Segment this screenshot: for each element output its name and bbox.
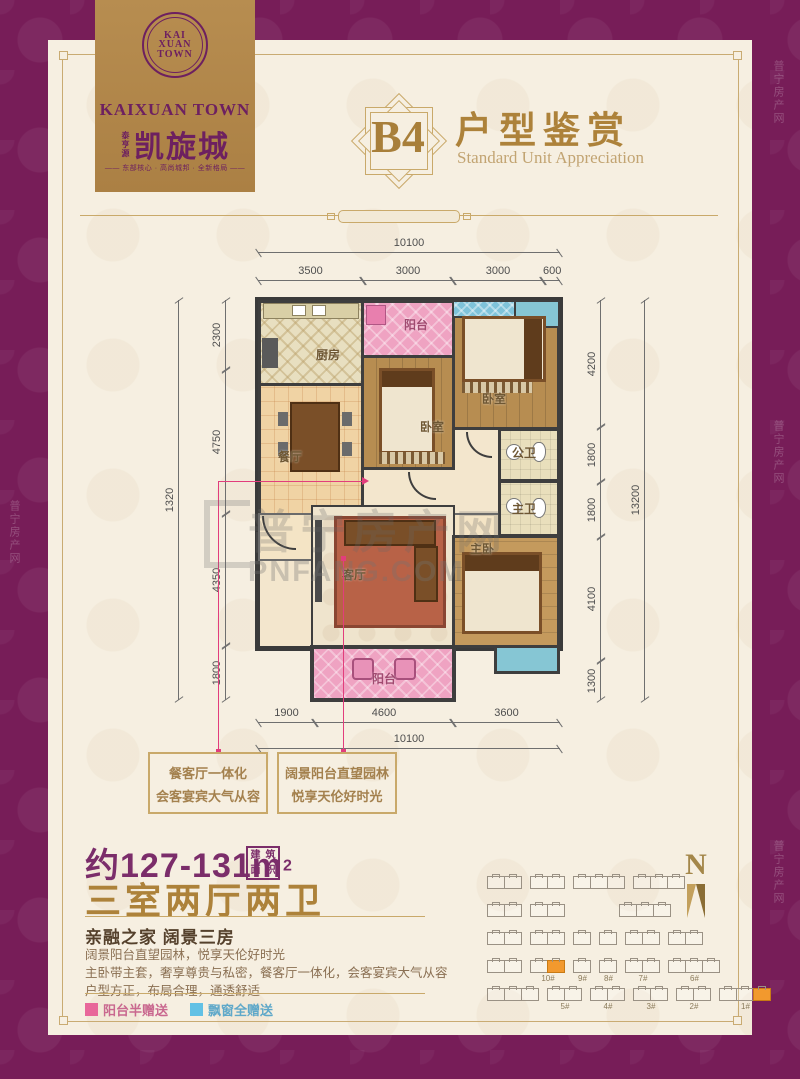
building-icon — [547, 876, 565, 889]
room-label-bath-public: 公卫 — [512, 444, 536, 461]
poster-page: 普宁房产网 普宁房产网 普宁房产网 普宁房产网 KAI XUAN TOWN KA… — [0, 0, 800, 1079]
kitchen-sink-icon — [312, 305, 326, 316]
building-label: 2# — [690, 1002, 699, 1011]
callout-text: 会客宴宾大气从容 — [150, 785, 266, 808]
dim-left-total: 1320 — [178, 300, 179, 700]
building-icon — [487, 876, 505, 889]
building-label: 9# — [578, 974, 587, 983]
building-label: 7# — [639, 974, 648, 983]
siteplan-building-cluster — [600, 932, 617, 955]
building-icon — [487, 988, 505, 1001]
building-icon — [530, 960, 548, 973]
dim-bottom-seg: 3600 — [453, 722, 560, 723]
siteplan-building-cluster: 10# — [531, 960, 565, 983]
summary-body: 阔景阳台直望园林，悦享天伦好时光 主卧带主套，奢享尊贵与私密，餐客厅一体化，会客… — [85, 946, 485, 1000]
siteplan-building-cluster — [597, 906, 611, 927]
building-icon — [564, 988, 582, 1001]
building-label: 3# — [647, 1002, 656, 1011]
building-icon — [650, 876, 668, 889]
dim-right-seg: 4100 — [600, 537, 601, 661]
brand-emblem-icon: KAI XUAN TOWN — [142, 12, 208, 78]
bed-pillow-icon — [465, 555, 539, 571]
dim-right-seg: 4200 — [600, 300, 601, 427]
callout-box-dining: 餐客厅一体化 会客宴宾大气从容 — [148, 752, 268, 814]
dim-right-seg: 1300 — [600, 661, 601, 700]
building-icon — [650, 988, 668, 1001]
building-label: 4# — [604, 1002, 613, 1011]
siteplan-building-cluster — [488, 904, 522, 927]
room-label-kitchen: 厨房 — [316, 346, 340, 363]
building-icon — [487, 960, 505, 973]
building-icon — [685, 960, 703, 973]
siteplan-building-cluster — [574, 876, 625, 899]
siteplan-building-cluster — [574, 906, 588, 927]
edge-watermark: 普宁房产网 — [770, 60, 786, 125]
siteplan-rows: 10#9#8#7#6#5#4#3#2#1# — [488, 876, 703, 1011]
siteplan-building-cluster: 6# — [669, 960, 720, 983]
kitchen-counter-icon — [263, 303, 359, 319]
balcony-chair-icon — [352, 658, 374, 680]
chair-icon — [342, 412, 352, 426]
building-icon — [530, 876, 548, 889]
building-icon — [487, 932, 505, 945]
siteplan-building-cluster — [488, 876, 522, 899]
dim-bottom-seg: 4600 — [315, 722, 453, 723]
dim-left-seg: 2300 — [225, 300, 226, 370]
building-icon — [693, 988, 711, 1001]
building-label: 10# — [541, 974, 554, 983]
building-icon — [504, 904, 522, 917]
building-icon — [702, 960, 720, 973]
siteplan-building-cluster: 9# — [574, 960, 591, 983]
building-icon — [504, 988, 522, 1001]
building-icon — [653, 904, 671, 917]
chair-icon — [278, 412, 288, 426]
edge-watermark: 普宁房产网 — [770, 840, 786, 905]
edge-watermark: 普宁房产网 — [6, 500, 22, 565]
washer-icon — [366, 305, 386, 325]
callout-text: 阔景阳台直望园林 — [279, 762, 395, 785]
siteplan-building-cluster: 5# — [548, 988, 582, 1011]
siteplan-building-cluster — [620, 904, 671, 927]
callout-line — [218, 481, 219, 752]
legend-label: 飘窗全赠送 — [208, 1000, 273, 1019]
sofa-icon — [344, 520, 436, 546]
building-icon — [668, 960, 686, 973]
building-icon — [642, 932, 660, 945]
callout-box-balcony: 阔景阳台直望园林 悦享天伦好时光 — [277, 752, 397, 814]
dim-left-seg: 4350 — [225, 514, 226, 646]
siteplan-building-cluster — [574, 932, 591, 955]
tv-cabinet-icon — [315, 520, 322, 602]
building-icon — [573, 932, 591, 945]
siteplan-building-cluster — [669, 932, 703, 955]
brand-name-en: KAIXUAN TOWN — [95, 100, 255, 120]
siteplan-building-cluster — [531, 904, 565, 927]
dim-top-seg: 3000 — [363, 280, 453, 281]
building-icon — [676, 988, 694, 1001]
north-label: N — [678, 848, 714, 882]
legend-item-balcony: 阳台半赠送 — [85, 1000, 168, 1019]
bed-pillow-icon — [524, 319, 542, 379]
unit-badge-label: B4 — [352, 110, 444, 163]
building-icon — [504, 960, 522, 973]
brand-tagline: —— 东部核心 · 高尚城邦 · 全新格局 —— — [95, 163, 255, 173]
building-icon — [547, 960, 565, 973]
siteplan-building-cluster — [488, 960, 522, 983]
siteplan-building-cluster — [488, 932, 522, 955]
kitchen-sink-icon — [292, 305, 306, 316]
building-icon — [590, 876, 608, 889]
siteplan: 10#9#8#7#6#5#4#3#2#1# — [488, 876, 703, 1016]
siteplan-building-cluster: 3# — [634, 988, 668, 1011]
page-title: 户型鉴赏 — [455, 100, 631, 154]
callout-text: 餐客厅一体化 — [150, 762, 266, 785]
summary-line: 阔景阳台直望园林，悦享天伦好时光 — [85, 946, 485, 964]
room-label-master: 主卧 — [470, 540, 494, 557]
dim-bottom-total: 10100 — [258, 748, 560, 749]
building-icon — [633, 988, 651, 1001]
dim-left-seg: 1800 — [225, 646, 226, 700]
siteplan-building-cluster — [626, 932, 660, 955]
building-icon — [636, 904, 654, 917]
building-icon — [719, 988, 737, 1001]
summary-line: 户型方正，布局合理，通透舒适 — [85, 982, 485, 1000]
building-icon — [530, 904, 548, 917]
siteplan-building-cluster: 7# — [626, 960, 660, 983]
building-icon — [619, 904, 637, 917]
siteplan-building-cluster — [488, 988, 539, 1011]
emblem-text: TOWN — [157, 50, 193, 60]
building-icon — [625, 960, 643, 973]
dim-top-total: 10100 — [258, 252, 560, 253]
building-icon — [521, 988, 539, 1001]
siteplan-building-cluster — [531, 876, 565, 899]
callout-text: 悦享天伦好时光 — [279, 785, 395, 808]
dim-bottom-seg: 1900 — [258, 722, 315, 723]
building-icon — [668, 932, 686, 945]
north-compass: N — [678, 848, 714, 918]
room-label-bedroom2: 卧室 — [482, 390, 506, 407]
building-icon — [642, 960, 660, 973]
legend-item-baywindow: 飘窗全赠送 — [190, 1000, 273, 1019]
room-label-dining: 餐厅 — [278, 448, 302, 465]
summary-heading: 亲融之家 阔景三房 — [85, 923, 235, 948]
legend-swatch-blue — [190, 1003, 203, 1016]
building-icon — [504, 876, 522, 889]
brand-logo-block: KAI XUAN TOWN KAIXUAN TOWN 泰亨源 凯旋城 —— 东部… — [95, 0, 255, 192]
room-label-bath-master: 主卫 — [512, 500, 536, 517]
building-icon — [590, 988, 608, 1001]
dim-right-seg: 1800 — [600, 427, 601, 482]
building-icon — [504, 932, 522, 945]
building-icon — [547, 904, 565, 917]
building-label: 1# — [741, 1002, 750, 1011]
building-icon — [607, 876, 625, 889]
dim-top-seg: 3000 — [453, 280, 543, 281]
header-divider — [80, 215, 718, 216]
legend-label: 阳台半赠送 — [103, 1000, 168, 1019]
summary-line: 主卧带主套，奢享尊贵与私密，餐客厅一体化，会客宴宾大气从容 — [85, 964, 485, 982]
callout-line — [218, 481, 362, 482]
page-subtitle: Standard Unit Appreciation — [457, 148, 644, 168]
summary-divider — [85, 916, 425, 917]
building-icon — [736, 988, 754, 1001]
north-arrow-icon — [687, 884, 705, 918]
building-icon — [547, 932, 565, 945]
dim-top-seg: 600 — [543, 280, 560, 281]
balcony-chair-icon — [394, 658, 416, 680]
wardrobe-icon — [379, 452, 445, 464]
building-icon — [633, 876, 651, 889]
siteplan-building-cluster — [531, 932, 565, 955]
building-icon — [599, 960, 617, 973]
legend-swatch-pink — [85, 1003, 98, 1016]
bay-window-master — [494, 645, 560, 674]
room-label-bedroom1: 卧室 — [420, 418, 444, 435]
building-icon — [685, 932, 703, 945]
unit-badge: B4 — [352, 94, 444, 186]
bed-pillow-icon — [382, 371, 432, 387]
building-icon — [530, 932, 548, 945]
building-icon — [599, 932, 617, 945]
stove-icon — [262, 338, 278, 368]
dim-top-seg: 3500 — [258, 280, 363, 281]
building-icon — [573, 876, 591, 889]
building-icon — [753, 988, 771, 1001]
dim-left-seg: 4750 — [225, 370, 226, 514]
dim-right-total: 13200 — [644, 300, 645, 700]
room-label-balcony-bottom: 阳台 — [372, 670, 396, 687]
siteplan-building-cluster: 4# — [591, 988, 625, 1011]
building-icon — [487, 904, 505, 917]
callout-line — [343, 558, 344, 752]
chair-icon — [342, 442, 352, 456]
building-label: 8# — [604, 974, 613, 983]
building-icon — [573, 960, 591, 973]
dim-right-seg: 1800 — [600, 482, 601, 537]
room-label-living: 客厅 — [342, 566, 366, 583]
summary-divider — [85, 993, 425, 994]
siteplan-building-cluster: 2# — [677, 988, 711, 1011]
sofa-side-icon — [414, 546, 438, 602]
brand-name-cn: 凯旋城 — [134, 122, 230, 166]
siteplan-building-cluster: 1# — [720, 988, 771, 1011]
building-label: 6# — [690, 974, 699, 983]
building-icon — [625, 932, 643, 945]
brand-side-cn: 泰亨源 — [120, 131, 131, 158]
building-icon — [607, 988, 625, 1001]
building-label: 5# — [561, 1002, 570, 1011]
siteplan-building-cluster: 8# — [600, 960, 617, 983]
building-icon — [547, 988, 565, 1001]
legend: 阳台半赠送 飘窗全赠送 — [85, 1000, 273, 1019]
edge-watermark: 普宁房产网 — [770, 420, 786, 485]
room-label-balcony-top: 阳台 — [404, 316, 428, 333]
callout-arrow — [362, 477, 369, 485]
